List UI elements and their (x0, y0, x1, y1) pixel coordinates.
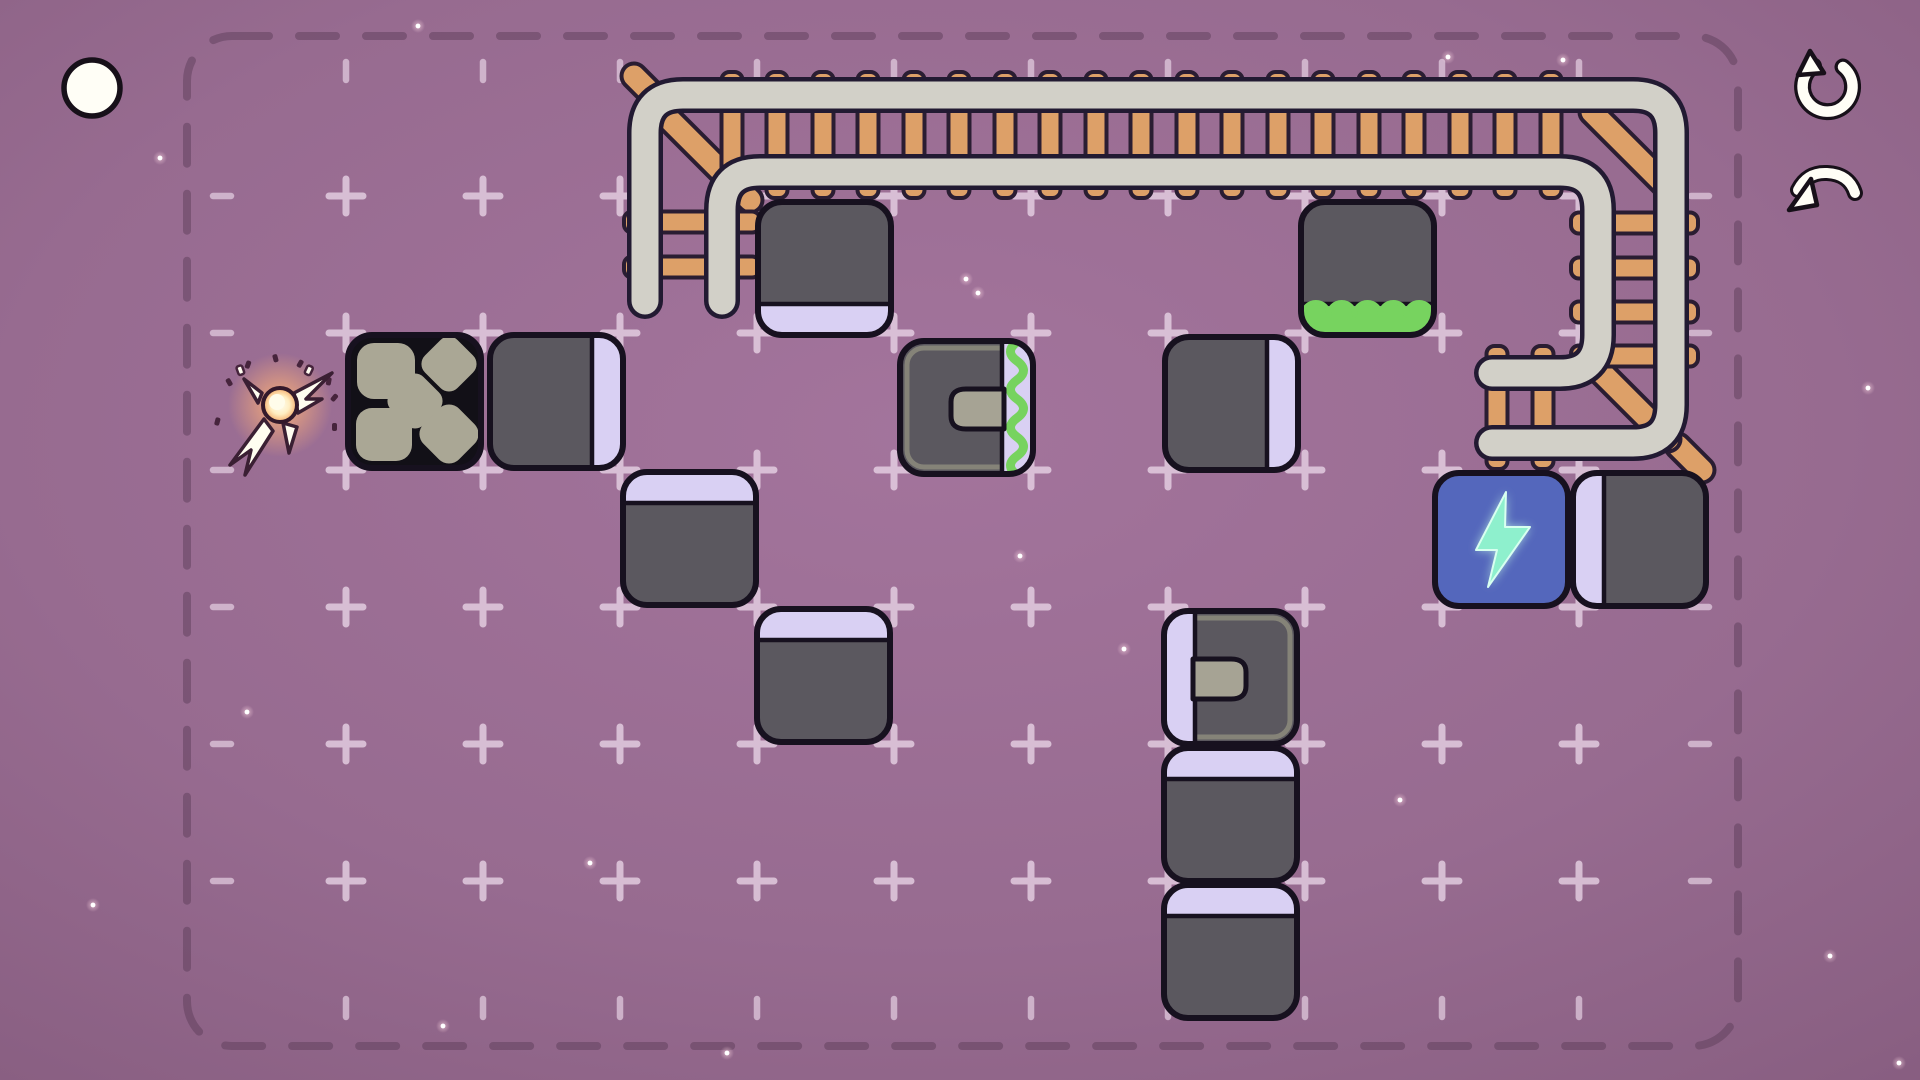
grid-cross (603, 727, 637, 761)
spark-debris (214, 417, 221, 426)
game-scene (0, 0, 1920, 1080)
star (1866, 386, 1871, 391)
star (1122, 647, 1127, 652)
block-gray[interactable] (758, 202, 891, 335)
spark-debris (332, 423, 337, 431)
grid-cross (329, 864, 363, 898)
star (441, 1024, 446, 1029)
grab-edge (1267, 337, 1298, 470)
grab-edge (592, 335, 623, 468)
grab-edge (1164, 748, 1297, 779)
grid-cross (466, 179, 500, 213)
star (158, 156, 163, 161)
block-stone[interactable] (348, 331, 484, 469)
star (1446, 55, 1451, 60)
block-gray[interactable] (757, 609, 890, 742)
star (1828, 954, 1833, 959)
sticky-edge (1303, 303, 1432, 336)
grid-cross (1014, 590, 1048, 624)
grid-cross (466, 864, 500, 898)
star (976, 291, 981, 296)
grid-cross (329, 179, 363, 213)
grid-cross (466, 727, 500, 761)
grid-cross (329, 727, 363, 761)
star (588, 861, 593, 866)
grid-cross (603, 864, 637, 898)
spark-orb-highlight (269, 394, 285, 410)
grid-cross (329, 590, 363, 624)
grid-cross (877, 864, 911, 898)
star (1897, 1061, 1902, 1066)
restart-icon (1798, 51, 1824, 75)
block-gray[interactable] (490, 335, 623, 468)
grid-cross (740, 864, 774, 898)
block-gray[interactable] (1573, 473, 1706, 606)
grab-edge (1164, 885, 1297, 916)
spark-character[interactable] (214, 353, 339, 475)
block-gray[interactable] (623, 472, 756, 605)
grid-cross (1562, 727, 1596, 761)
grid-cross (1562, 864, 1596, 898)
grab-edge (1164, 611, 1195, 744)
grab-edge (1573, 473, 1604, 606)
game-stage (0, 0, 1920, 1080)
grid-cross (466, 590, 500, 624)
socket-notch (951, 389, 1004, 429)
undo-button[interactable] (1789, 173, 1855, 210)
block-socket[interactable] (1164, 611, 1297, 744)
block-socket-sticky[interactable] (900, 341, 1033, 475)
star (725, 1051, 730, 1056)
grid-cross (1425, 864, 1459, 898)
star (1018, 554, 1023, 559)
star (416, 24, 421, 29)
restart-button[interactable] (1798, 51, 1853, 112)
spark-debris (236, 365, 245, 376)
menu-button[interactable] (64, 60, 120, 116)
block-sticky-bottom[interactable] (1301, 202, 1434, 335)
block-gray[interactable] (1164, 748, 1297, 881)
star (245, 710, 250, 715)
star (964, 277, 969, 282)
grid-cross (1014, 727, 1048, 761)
block-gray[interactable] (1164, 885, 1297, 1018)
star (1561, 58, 1566, 63)
grid-cross (1425, 727, 1459, 761)
grab-edge (623, 472, 756, 503)
grid-cross (1014, 864, 1048, 898)
grab-edge (757, 609, 890, 640)
star (1398, 798, 1403, 803)
block-gray[interactable] (1165, 337, 1298, 470)
star (91, 903, 96, 908)
block-battery[interactable] (1435, 473, 1568, 606)
socket-notch (1193, 659, 1246, 699)
grab-edge (758, 304, 891, 335)
